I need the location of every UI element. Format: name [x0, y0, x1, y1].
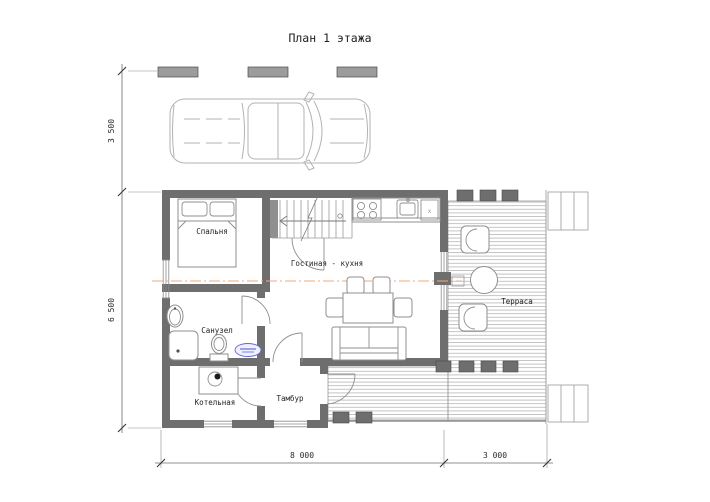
- svg-text:x: x: [428, 207, 432, 215]
- label-terrace: Терраса: [501, 297, 533, 306]
- label-bathroom: Санузел: [201, 326, 233, 335]
- dimension-left: 3 500 6 500: [107, 64, 161, 433]
- parking-strips: [158, 67, 377, 77]
- stamp-watermark-icon: [235, 344, 261, 357]
- terrace-chair-top: [461, 226, 489, 253]
- label-boiler-room: Котельная: [195, 398, 236, 407]
- shower-icon: [169, 331, 198, 360]
- label-living-kitchen: Гостиная - кухня: [291, 259, 363, 268]
- window-bottom-1: [204, 421, 232, 427]
- car-top-view-icon: [170, 92, 370, 170]
- dim-left-bottom: 6 500: [107, 298, 116, 322]
- washbasin-icon: [167, 305, 183, 327]
- window-bottom-2: [274, 421, 307, 427]
- door-living-vestibule: [273, 333, 302, 362]
- steps-top-right: [548, 192, 588, 230]
- steps-bottom-right: [548, 385, 588, 422]
- door-bathroom: [242, 296, 270, 324]
- kitchen-counter: x: [352, 198, 440, 222]
- terrace-table: [471, 267, 498, 294]
- window-left-wall: [162, 260, 170, 298]
- toilet-icon: [210, 335, 228, 362]
- page-title: План 1 этажа: [288, 31, 371, 45]
- dining-set: [326, 277, 412, 323]
- sofa: [332, 327, 406, 360]
- terrace-chair-bottom: [459, 304, 487, 331]
- label-bedroom: Спальня: [196, 227, 228, 236]
- boiler-unit-icon: [199, 367, 238, 394]
- stairs: [270, 196, 352, 241]
- dimension-bottom: 8 000 3 000: [155, 424, 553, 468]
- terrace-steps: [548, 192, 588, 422]
- dim-bottom-terrace: 3 000: [483, 451, 507, 460]
- dim-bottom-house: 8 000: [290, 451, 314, 460]
- dim-left-top: 3 500: [107, 119, 116, 143]
- floor-plan-sheet: План 1 этажа: [0, 0, 710, 502]
- label-vestibule: Тамбур: [276, 394, 304, 403]
